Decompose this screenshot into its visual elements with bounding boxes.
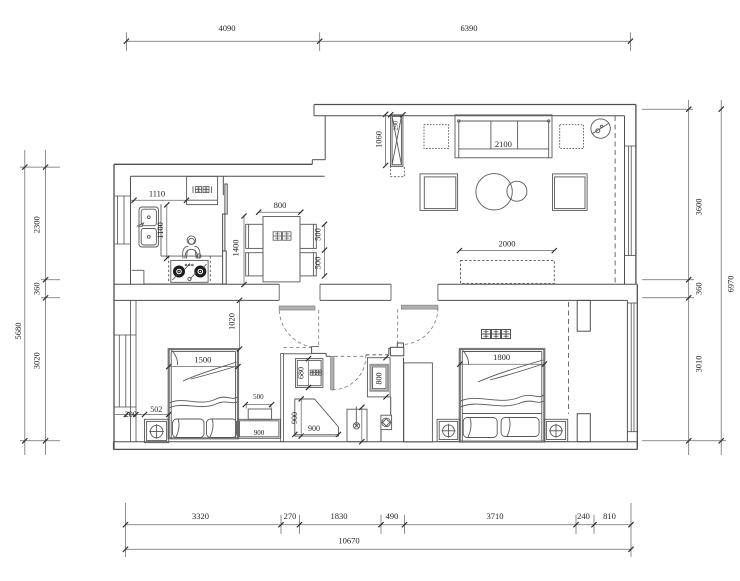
svg-text:3020: 3020 xyxy=(32,352,42,369)
svg-text:3010: 3010 xyxy=(694,356,704,373)
svg-text:200: 200 xyxy=(125,410,137,419)
svg-text:360: 360 xyxy=(694,282,704,295)
svg-text:800: 800 xyxy=(274,200,287,210)
svg-text:502: 502 xyxy=(150,405,162,414)
svg-text:1400: 1400 xyxy=(231,240,241,257)
svg-text:1500: 1500 xyxy=(194,354,211,364)
svg-text:360: 360 xyxy=(32,282,42,295)
svg-text:900: 900 xyxy=(290,412,299,424)
svg-text:500: 500 xyxy=(253,393,264,401)
svg-text:3710: 3710 xyxy=(487,511,504,521)
svg-text:900: 900 xyxy=(254,429,265,437)
svg-text:3320: 3320 xyxy=(192,511,209,521)
svg-text:1020: 1020 xyxy=(226,313,236,330)
svg-text:270: 270 xyxy=(284,511,297,521)
svg-text:500: 500 xyxy=(312,257,322,270)
svg-text:3600: 3600 xyxy=(694,199,704,216)
svg-text:810: 810 xyxy=(603,511,616,521)
svg-text:2300: 2300 xyxy=(32,216,42,233)
svg-text:2000: 2000 xyxy=(499,238,516,248)
svg-text:800: 800 xyxy=(375,373,384,385)
svg-text:680: 680 xyxy=(297,367,306,379)
svg-text:6390: 6390 xyxy=(461,23,478,33)
svg-text:900: 900 xyxy=(308,424,320,433)
svg-text:6970: 6970 xyxy=(726,276,736,293)
svg-text:5680: 5680 xyxy=(13,323,23,340)
svg-text:1800: 1800 xyxy=(493,352,510,362)
svg-text:240: 240 xyxy=(577,511,590,521)
svg-text:1110: 1110 xyxy=(149,188,165,198)
svg-text:1060: 1060 xyxy=(373,131,383,148)
svg-text:10670: 10670 xyxy=(338,536,359,546)
svg-text:1830: 1830 xyxy=(331,511,348,521)
svg-text:1100: 1100 xyxy=(155,222,165,239)
svg-text:500: 500 xyxy=(312,228,322,241)
svg-text:2100: 2100 xyxy=(495,139,512,149)
svg-text:490: 490 xyxy=(386,511,399,521)
svg-text:4090: 4090 xyxy=(219,23,236,33)
svg-text:290: 290 xyxy=(392,121,399,130)
